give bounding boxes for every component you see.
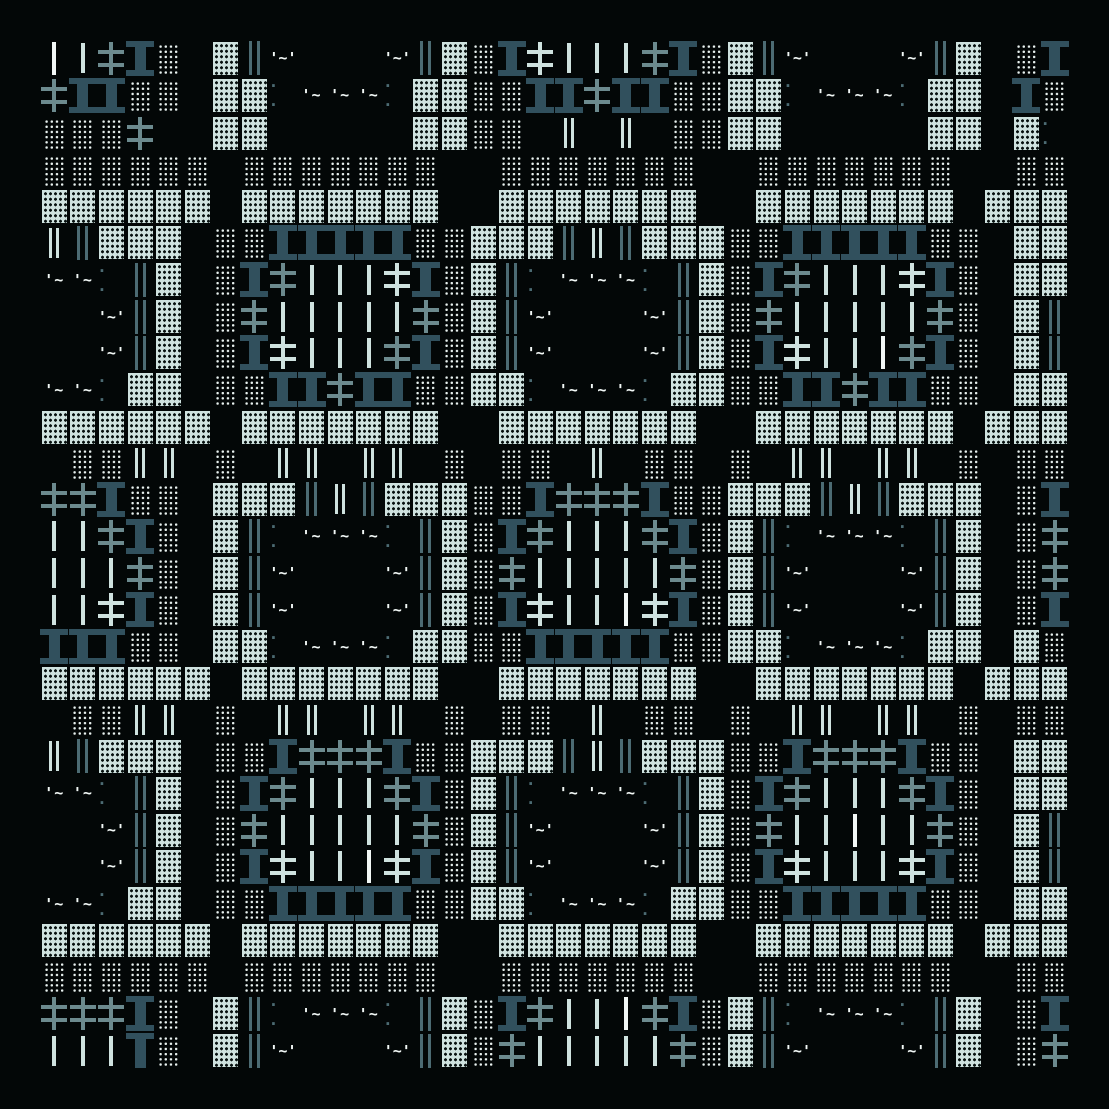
single-bar-glyph	[583, 517, 612, 555]
halftone-block-dots-glyph	[697, 481, 726, 517]
empty-cell	[526, 114, 555, 152]
empty-cell	[983, 592, 1012, 628]
halftone-block-mint-glyph	[955, 628, 984, 666]
halftone-block-mint-glyph	[1040, 224, 1069, 260]
halftone-block-mint-glyph	[1012, 628, 1041, 666]
halftone-block-dots-glyph	[812, 959, 841, 995]
cross-slate-glyph	[326, 371, 355, 409]
halftone-block-mint-glyph	[1040, 885, 1069, 923]
double-bar-light-glyph	[840, 481, 869, 517]
empty-cell	[469, 409, 498, 445]
halftone-block-dots-glyph	[955, 738, 984, 774]
dots-pair-glyph: · ·	[783, 76, 812, 114]
empty-cell	[612, 445, 641, 481]
cross-slate-glyph	[612, 481, 641, 517]
halftone-block-dots-glyph	[469, 628, 498, 666]
empty-cell	[212, 409, 241, 445]
empty-cell	[812, 555, 841, 591]
empty-cell	[983, 738, 1012, 774]
halftone-block-dots-glyph	[440, 299, 469, 335]
halftone-block-mint-glyph	[297, 409, 326, 445]
double-bar-slate-glyph	[497, 848, 526, 884]
wave-motif-glyph: '~	[840, 76, 869, 114]
cross-slate-glyph	[812, 738, 841, 774]
halftone-block-mint-glyph	[126, 409, 155, 445]
halftone-block-mint-glyph	[383, 481, 412, 517]
slab-i-glyph	[497, 40, 526, 76]
single-bar-glyph	[555, 995, 584, 1033]
halftone-block-dots-glyph	[555, 152, 584, 188]
halftone-block-mint-glyph	[469, 848, 498, 884]
single-bar-glyph	[69, 517, 98, 555]
slab-i-glyph	[555, 76, 584, 114]
halftone-block-mint-glyph	[40, 188, 69, 224]
slab-i-glyph	[383, 224, 412, 260]
halftone-block-mint-glyph	[955, 76, 984, 114]
double-bar-slate-glyph	[926, 1033, 955, 1069]
slab-i-glyph	[755, 261, 784, 299]
halftone-block-mint-glyph	[269, 666, 298, 702]
halftone-block-dots-glyph	[955, 224, 984, 260]
tilde-motif-glyph: '~'	[269, 1033, 298, 1069]
empty-cell	[297, 40, 326, 76]
dots-pair-glyph: · ·	[97, 261, 126, 299]
single-bar-glyph	[812, 299, 841, 335]
halftone-block-mint-glyph	[726, 481, 755, 517]
halftone-block-dots-glyph	[154, 959, 183, 995]
slab-i-glyph	[383, 738, 412, 774]
halftone-block-mint-glyph	[97, 224, 126, 260]
halftone-block-mint-glyph	[926, 188, 955, 224]
halftone-block-dots-glyph	[869, 959, 898, 995]
halftone-block-dots-glyph	[440, 371, 469, 409]
wave-motif-glyph: '~	[326, 628, 355, 666]
halftone-block-mint-glyph	[755, 666, 784, 702]
wave-motif-glyph: '~	[354, 995, 383, 1033]
halftone-block-dots-glyph	[69, 114, 98, 152]
tilde-motif-glyph: '~'	[526, 848, 555, 884]
halftone-block-mint-glyph	[926, 666, 955, 702]
glyph-grid: '~''~''~''~'· ·'~'~'~· ·· ·'~'~'~· ·· ·'…	[40, 40, 1069, 1069]
halftone-block-mint-glyph	[840, 188, 869, 224]
empty-cell	[40, 812, 69, 848]
empty-cell	[869, 114, 898, 152]
halftone-block-dots-glyph	[354, 152, 383, 188]
slab-i-glyph	[69, 628, 98, 666]
single-bar-glyph	[869, 774, 898, 812]
halftone-block-dots-glyph	[412, 738, 441, 774]
dots-pair-glyph: · ·	[97, 774, 126, 812]
dots-pair-glyph: · ·	[269, 995, 298, 1033]
halftone-block-dots-glyph	[669, 114, 698, 152]
halftone-block-mint-glyph	[783, 923, 812, 959]
halftone-block-dots-glyph	[755, 738, 784, 774]
halftone-block-dots-glyph	[669, 445, 698, 481]
halftone-block-mint-glyph	[154, 409, 183, 445]
cross-slate-glyph	[840, 738, 869, 774]
halftone-block-dots-glyph	[212, 299, 241, 335]
cross-slate-glyph	[555, 481, 584, 517]
wave-motif-glyph: '~	[69, 371, 98, 409]
slab-i-glyph	[126, 517, 155, 555]
halftone-block-mint-glyph	[926, 409, 955, 445]
cross-slate-glyph	[497, 555, 526, 591]
slab-t-glyph	[126, 1033, 155, 1069]
empty-cell	[840, 1033, 869, 1069]
halftone-block-dots-glyph	[669, 152, 698, 188]
empty-cell	[697, 409, 726, 445]
single-bar-glyph	[40, 1033, 69, 1069]
empty-cell	[212, 959, 241, 995]
empty-cell	[354, 592, 383, 628]
halftone-block-dots-glyph	[726, 702, 755, 738]
halftone-block-mint-glyph	[612, 188, 641, 224]
empty-cell	[183, 114, 212, 152]
halftone-block-dots-glyph	[126, 959, 155, 995]
tilde-motif-glyph: '~'	[97, 335, 126, 371]
halftone-block-dots-glyph	[154, 592, 183, 628]
halftone-block-mint-glyph	[469, 224, 498, 260]
halftone-block-mint-glyph	[69, 188, 98, 224]
slab-i-glyph	[240, 261, 269, 299]
slab-i-glyph	[240, 335, 269, 371]
halftone-block-mint-glyph	[412, 188, 441, 224]
halftone-block-dots-glyph	[69, 702, 98, 738]
halftone-block-dots-glyph	[440, 738, 469, 774]
halftone-block-mint-glyph	[640, 738, 669, 774]
halftone-block-dots-glyph	[840, 152, 869, 188]
halftone-block-dots-glyph	[583, 152, 612, 188]
slab-i-glyph	[1040, 481, 1069, 517]
halftone-block-mint-glyph	[526, 738, 555, 774]
single-bar-glyph	[783, 299, 812, 335]
single-bar-glyph	[583, 592, 612, 628]
slab-i-glyph	[497, 592, 526, 628]
halftone-block-dots-glyph	[497, 76, 526, 114]
empty-cell	[697, 188, 726, 224]
empty-cell	[183, 702, 212, 738]
halftone-block-dots-glyph	[697, 76, 726, 114]
empty-cell	[555, 445, 584, 481]
double-bar-light-glyph	[269, 445, 298, 481]
empty-cell	[212, 923, 241, 959]
wave-motif-glyph: '~	[555, 885, 584, 923]
halftone-block-dots-glyph	[440, 774, 469, 812]
double-bar-slate-glyph	[755, 1033, 784, 1069]
single-bar-glyph	[326, 774, 355, 812]
halftone-block-mint-glyph	[69, 666, 98, 702]
halftone-block-mint-glyph	[1040, 371, 1069, 409]
halftone-block-mint-glyph	[726, 114, 755, 152]
halftone-block-dots-glyph	[869, 152, 898, 188]
single-bar-glyph	[783, 812, 812, 848]
halftone-block-dots-glyph	[1040, 959, 1069, 995]
single-bar-glyph	[640, 555, 669, 591]
slab-i-glyph	[126, 592, 155, 628]
halftone-block-dots-glyph	[240, 224, 269, 260]
halftone-block-dots-glyph	[1012, 702, 1041, 738]
halftone-block-mint-glyph	[1012, 299, 1041, 335]
halftone-block-mint-glyph	[69, 923, 98, 959]
halftone-block-mint-glyph	[354, 666, 383, 702]
single-bar-glyph	[326, 812, 355, 848]
dots-pair-glyph: · ·	[97, 371, 126, 409]
halftone-block-mint-glyph	[183, 666, 212, 702]
halftone-block-dots-glyph	[669, 702, 698, 738]
double-bar-light-glyph	[612, 114, 641, 152]
empty-cell	[583, 335, 612, 371]
halftone-block-mint-glyph	[1040, 774, 1069, 812]
halftone-block-dots-glyph	[126, 76, 155, 114]
empty-cell	[440, 188, 469, 224]
halftone-block-mint-glyph	[697, 261, 726, 299]
single-bar-glyph	[354, 812, 383, 848]
wave-motif-glyph: '~	[555, 774, 584, 812]
dots-pair-glyph: · ·	[1040, 114, 1069, 152]
halftone-block-dots-glyph	[898, 152, 927, 188]
halftone-block-mint-glyph	[755, 114, 784, 152]
empty-cell	[955, 666, 984, 702]
wave-motif-glyph: '~	[354, 628, 383, 666]
cross-slate-glyph	[755, 812, 784, 848]
cross-light-glyph	[526, 592, 555, 628]
halftone-block-mint-glyph	[212, 481, 241, 517]
halftone-block-mint-glyph	[697, 774, 726, 812]
halftone-block-mint-glyph	[583, 409, 612, 445]
halftone-block-mint-glyph	[755, 481, 784, 517]
halftone-block-mint-glyph	[898, 188, 927, 224]
empty-cell	[955, 152, 984, 188]
empty-cell	[326, 114, 355, 152]
wave-motif-glyph: '~	[583, 774, 612, 812]
halftone-block-dots-glyph	[840, 959, 869, 995]
halftone-block-mint-glyph	[212, 76, 241, 114]
empty-cell	[440, 959, 469, 995]
halftone-block-dots-glyph	[497, 959, 526, 995]
empty-cell	[640, 114, 669, 152]
empty-cell	[326, 445, 355, 481]
wave-motif-glyph: '~	[812, 76, 841, 114]
double-bar-slate-glyph	[412, 995, 441, 1033]
cross-slate-glyph	[669, 555, 698, 591]
tilde-motif-glyph: '~'	[640, 848, 669, 884]
halftone-block-dots-glyph	[640, 445, 669, 481]
single-bar-glyph	[583, 555, 612, 591]
halftone-block-dots-glyph	[40, 114, 69, 152]
double-bar-slate-glyph	[497, 335, 526, 371]
empty-cell	[812, 114, 841, 152]
double-bar-slate-glyph	[240, 592, 269, 628]
halftone-block-mint-glyph	[898, 666, 927, 702]
halftone-block-mint-glyph	[726, 40, 755, 76]
single-bar-glyph	[869, 299, 898, 335]
double-bar-slate-glyph	[126, 848, 155, 884]
halftone-block-mint-glyph	[612, 409, 641, 445]
cross-slate-glyph	[640, 40, 669, 76]
empty-cell	[440, 666, 469, 702]
halftone-block-dots-glyph	[726, 445, 755, 481]
halftone-block-dots-glyph	[40, 152, 69, 188]
single-bar-glyph	[297, 774, 326, 812]
halftone-block-dots-glyph	[440, 885, 469, 923]
halftone-block-mint-glyph	[126, 371, 155, 409]
empty-cell	[812, 1033, 841, 1069]
tilde-motif-glyph: '~'	[526, 335, 555, 371]
dots-pair-glyph: · ·	[383, 995, 412, 1033]
halftone-block-mint-glyph	[240, 481, 269, 517]
halftone-block-dots-glyph	[497, 702, 526, 738]
halftone-block-mint-glyph	[840, 923, 869, 959]
halftone-block-dots-glyph	[497, 628, 526, 666]
halftone-block-dots-glyph	[69, 152, 98, 188]
double-bar-light-glyph	[583, 738, 612, 774]
dots-pair-glyph: · ·	[383, 517, 412, 555]
empty-cell	[726, 923, 755, 959]
single-bar-glyph	[526, 1033, 555, 1069]
halftone-block-dots-glyph	[783, 959, 812, 995]
cross-slate-glyph	[97, 995, 126, 1033]
empty-cell	[840, 40, 869, 76]
slab-i-glyph	[240, 848, 269, 884]
slab-i-glyph	[269, 738, 298, 774]
halftone-block-dots-glyph	[69, 445, 98, 481]
empty-cell	[183, 40, 212, 76]
cross-slate-glyph	[412, 299, 441, 335]
empty-cell	[983, 1033, 1012, 1069]
single-bar-glyph	[555, 1033, 584, 1069]
double-bar-light-glyph	[383, 445, 412, 481]
halftone-block-mint-glyph	[469, 371, 498, 409]
cross-slate-glyph	[783, 774, 812, 812]
empty-cell	[697, 445, 726, 481]
halftone-block-mint-glyph	[612, 923, 641, 959]
wave-motif-glyph: '~	[354, 517, 383, 555]
slab-i-glyph	[869, 371, 898, 409]
slab-i-glyph	[1012, 76, 1041, 114]
empty-cell	[983, 517, 1012, 555]
double-bar-slate-glyph	[926, 517, 955, 555]
halftone-block-dots-glyph	[926, 224, 955, 260]
halftone-block-dots-glyph	[412, 152, 441, 188]
halftone-block-mint-glyph	[840, 666, 869, 702]
halftone-block-dots-glyph	[97, 114, 126, 152]
halftone-block-mint-glyph	[640, 188, 669, 224]
halftone-block-mint-glyph	[154, 666, 183, 702]
tilde-motif-glyph: '~'	[269, 40, 298, 76]
dots-pair-glyph: · ·	[526, 371, 555, 409]
halftone-block-dots-glyph	[469, 555, 498, 591]
halftone-block-mint-glyph	[126, 224, 155, 260]
halftone-block-dots-glyph	[269, 959, 298, 995]
cross-slate-glyph	[126, 114, 155, 152]
empty-cell	[297, 592, 326, 628]
dots-pair-glyph: · ·	[640, 261, 669, 299]
halftone-block-mint-glyph	[469, 335, 498, 371]
double-bar-slate-glyph	[869, 481, 898, 517]
dots-pair-glyph: · ·	[640, 885, 669, 923]
tilde-motif-glyph: '~'	[269, 592, 298, 628]
cross-slate-glyph	[1040, 555, 1069, 591]
halftone-block-dots-glyph	[1040, 628, 1069, 666]
halftone-block-mint-glyph	[40, 923, 69, 959]
halftone-block-mint-glyph	[1012, 666, 1041, 702]
empty-cell	[983, 848, 1012, 884]
empty-cell	[555, 335, 584, 371]
dots-pair-glyph: · ·	[898, 76, 927, 114]
cross-slate-glyph	[783, 261, 812, 299]
empty-cell	[583, 114, 612, 152]
double-bar-slate-glyph	[669, 774, 698, 812]
slab-i-glyph	[269, 885, 298, 923]
slab-i-glyph	[898, 371, 927, 409]
dots-pair-glyph: · ·	[898, 995, 927, 1033]
dots-pair-glyph: · ·	[269, 628, 298, 666]
wave-motif-glyph: '~	[354, 76, 383, 114]
halftone-block-dots-glyph	[697, 628, 726, 666]
single-bar-glyph	[555, 555, 584, 591]
double-bar-light-glyph	[869, 702, 898, 738]
empty-cell	[726, 152, 755, 188]
halftone-block-mint-glyph	[640, 409, 669, 445]
halftone-block-dots-glyph	[640, 702, 669, 738]
halftone-block-dots-glyph	[383, 959, 412, 995]
slab-i-glyph	[669, 517, 698, 555]
halftone-block-mint-glyph	[97, 188, 126, 224]
cross-slate-glyph	[926, 299, 955, 335]
halftone-block-mint-glyph	[726, 1033, 755, 1069]
halftone-block-mint-glyph	[1012, 738, 1041, 774]
cross-slate-glyph	[898, 774, 927, 812]
halftone-block-dots-glyph	[955, 848, 984, 884]
halftone-block-mint-glyph	[697, 848, 726, 884]
halftone-block-mint-glyph	[154, 885, 183, 923]
slab-i-glyph	[755, 335, 784, 371]
double-bar-light-glyph	[154, 702, 183, 738]
empty-cell	[40, 445, 69, 481]
halftone-block-mint-glyph	[526, 409, 555, 445]
halftone-block-mint-glyph	[697, 812, 726, 848]
empty-cell	[983, 371, 1012, 409]
double-bar-light-glyph	[154, 445, 183, 481]
halftone-block-mint-glyph	[1012, 335, 1041, 371]
double-bar-slate-glyph	[497, 299, 526, 335]
single-bar-glyph	[97, 555, 126, 591]
empty-cell	[183, 76, 212, 114]
wave-motif-glyph: '~	[297, 517, 326, 555]
cross-slate-glyph	[926, 812, 955, 848]
dots-pair-glyph: · ·	[269, 76, 298, 114]
halftone-block-mint-glyph	[697, 738, 726, 774]
empty-cell	[40, 702, 69, 738]
slab-i-glyph	[383, 885, 412, 923]
wave-motif-glyph: '~	[69, 774, 98, 812]
single-bar-glyph	[297, 261, 326, 299]
slab-i-glyph	[840, 885, 869, 923]
single-bar-glyph	[354, 774, 383, 812]
halftone-block-mint-glyph	[240, 666, 269, 702]
halftone-block-mint-glyph	[40, 409, 69, 445]
halftone-block-dots-glyph	[1040, 702, 1069, 738]
single-bar-glyph	[812, 848, 841, 884]
empty-cell	[183, 812, 212, 848]
halftone-block-dots-glyph	[497, 114, 526, 152]
halftone-block-mint-glyph	[154, 224, 183, 260]
wave-motif-glyph: '~	[40, 885, 69, 923]
double-bar-light-glyph	[126, 702, 155, 738]
single-bar-glyph	[583, 1033, 612, 1069]
halftone-block-mint-glyph	[812, 666, 841, 702]
empty-cell	[983, 628, 1012, 666]
